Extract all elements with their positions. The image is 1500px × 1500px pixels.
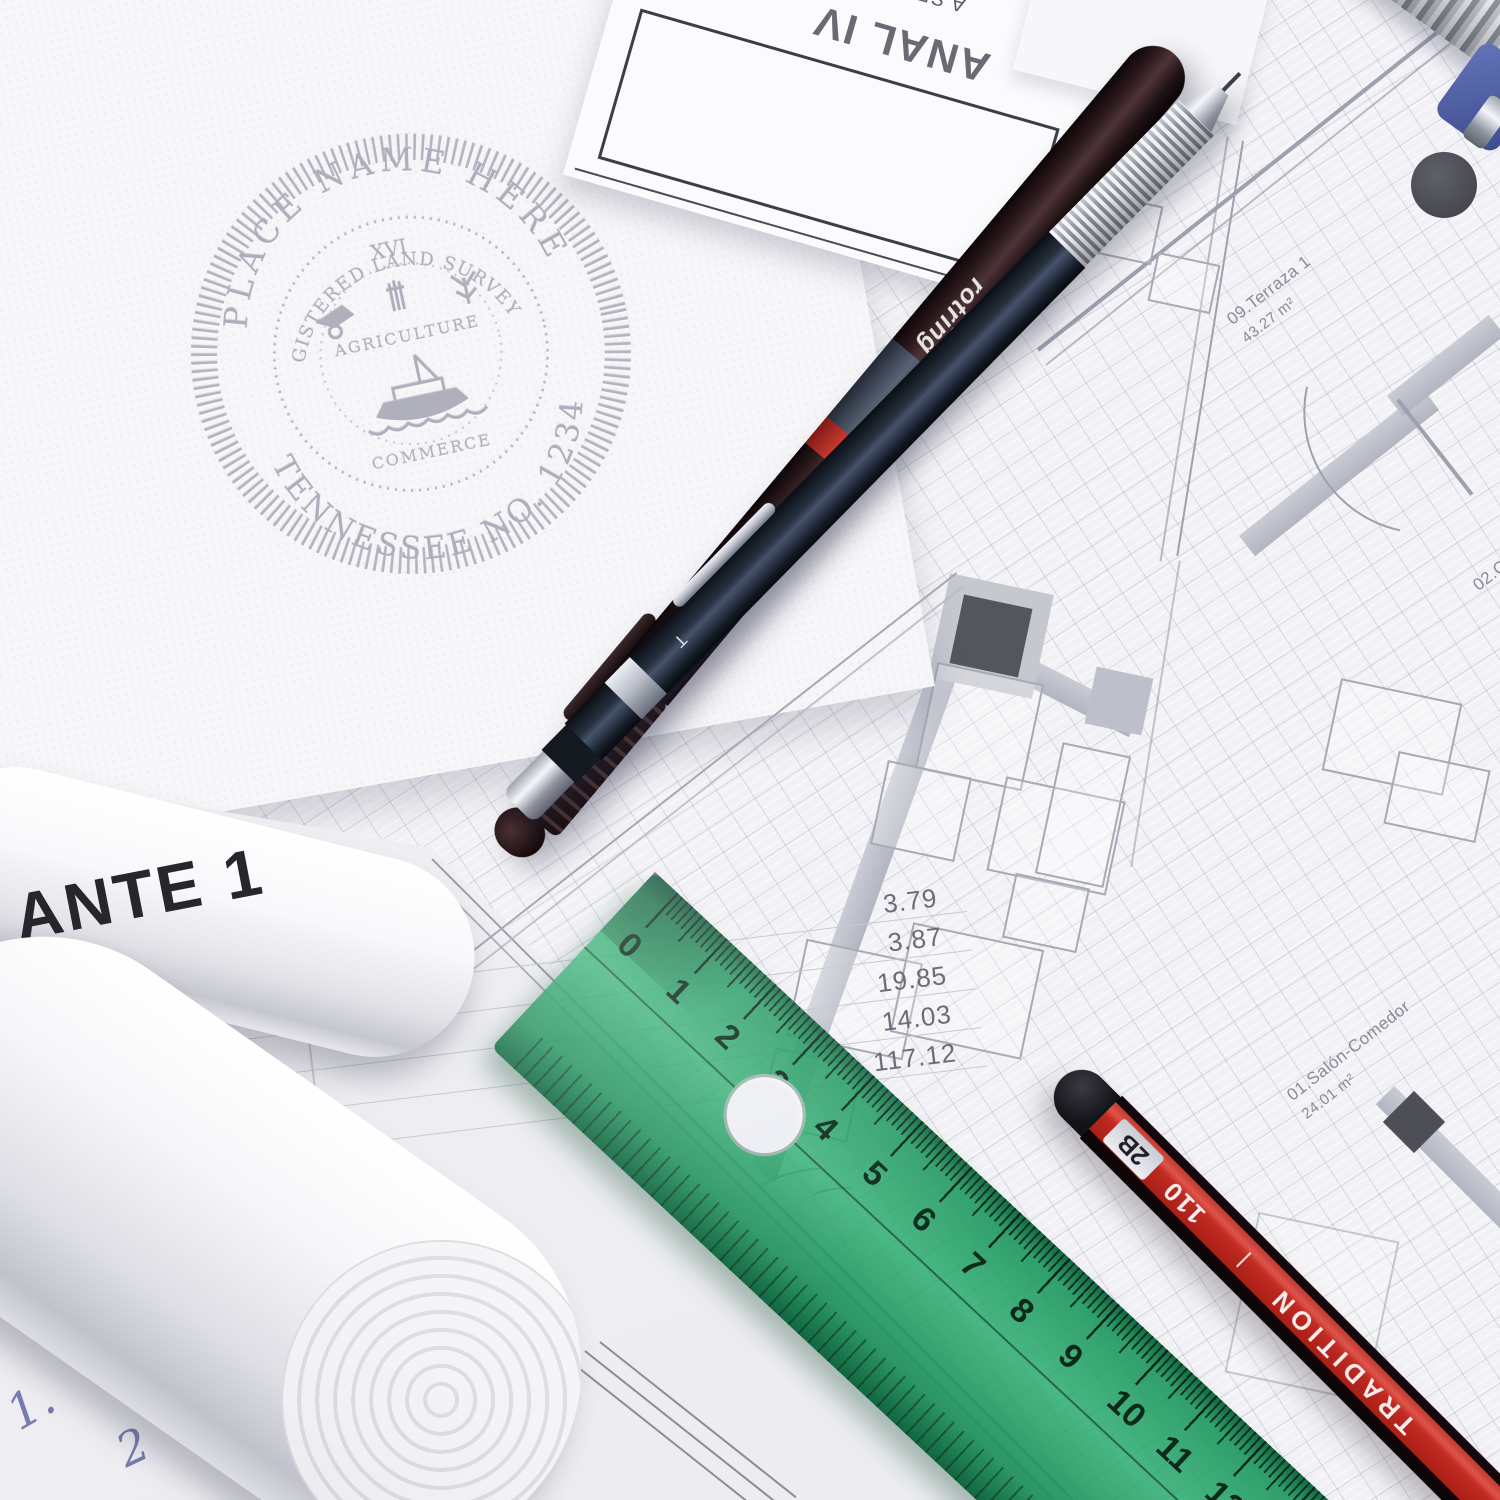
table-row-value: 117.12: [872, 1037, 959, 1078]
desk-photo-scene: 09.Terraza 1 43.27 m² 01.Salón-Comedor 2…: [0, 0, 1500, 1500]
table-row-value: 3.87: [886, 921, 944, 958]
seal-agriculture-label: AGRICULTURE: [332, 311, 482, 361]
plan-dot-marker: [1411, 152, 1477, 218]
plan-furniture: [870, 760, 972, 862]
seal-emblem-riverboat: [355, 343, 487, 436]
pencil-lead: [1222, 72, 1242, 92]
plan-wall-block: [1085, 667, 1154, 736]
table-row-value: 3.79: [881, 882, 939, 919]
plan-column: [949, 594, 1032, 677]
seal-commerce-label: COMMERCE: [370, 430, 494, 474]
seal-tick-ring: [166, 109, 657, 600]
